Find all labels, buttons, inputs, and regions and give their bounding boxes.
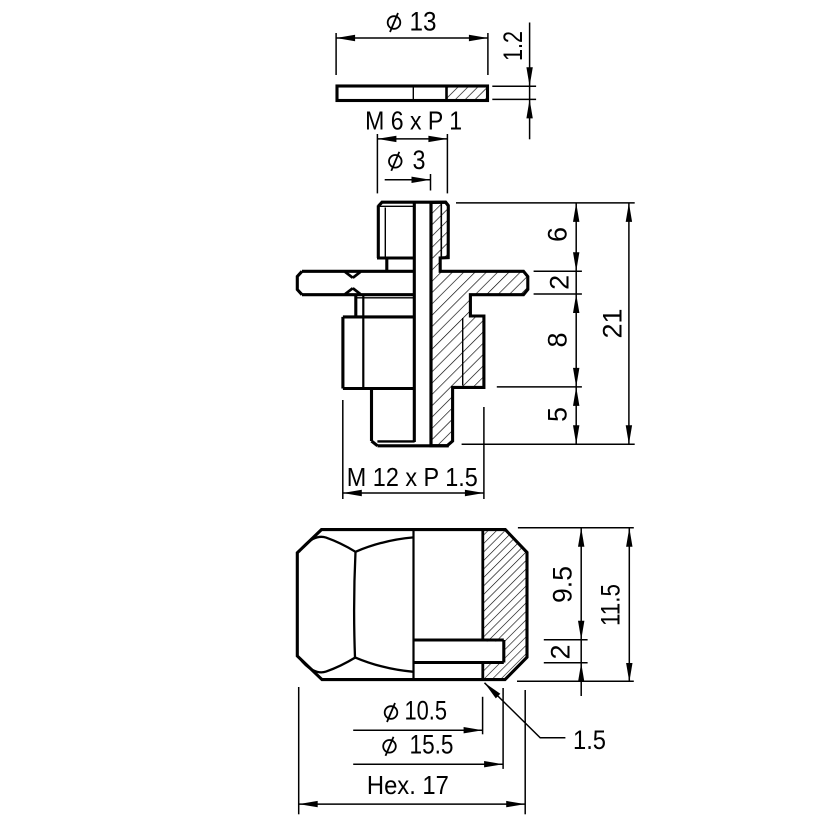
svg-text:2: 2: [544, 275, 574, 290]
svg-text:13: 13: [410, 7, 437, 37]
svg-text:1.5: 1.5: [573, 725, 606, 755]
svg-text:9.5: 9.5: [547, 566, 577, 603]
svg-text:1.2: 1.2: [498, 31, 528, 61]
svg-text:11.5: 11.5: [595, 584, 625, 626]
svg-text:2: 2: [545, 644, 575, 659]
svg-text:M 6 x P 1: M 6 x P 1: [365, 105, 462, 135]
svg-text:8: 8: [542, 332, 572, 347]
svg-text:15.5: 15.5: [410, 729, 454, 759]
svg-text:Hex. 17: Hex. 17: [367, 770, 449, 800]
svg-text:10.5: 10.5: [405, 695, 448, 725]
svg-text:M 12 x P 1.5: M 12 x P 1.5: [347, 462, 478, 492]
svg-text:3: 3: [413, 145, 426, 175]
svg-text:5: 5: [542, 407, 572, 422]
svg-text:21: 21: [597, 309, 627, 339]
svg-text:6: 6: [542, 227, 572, 242]
